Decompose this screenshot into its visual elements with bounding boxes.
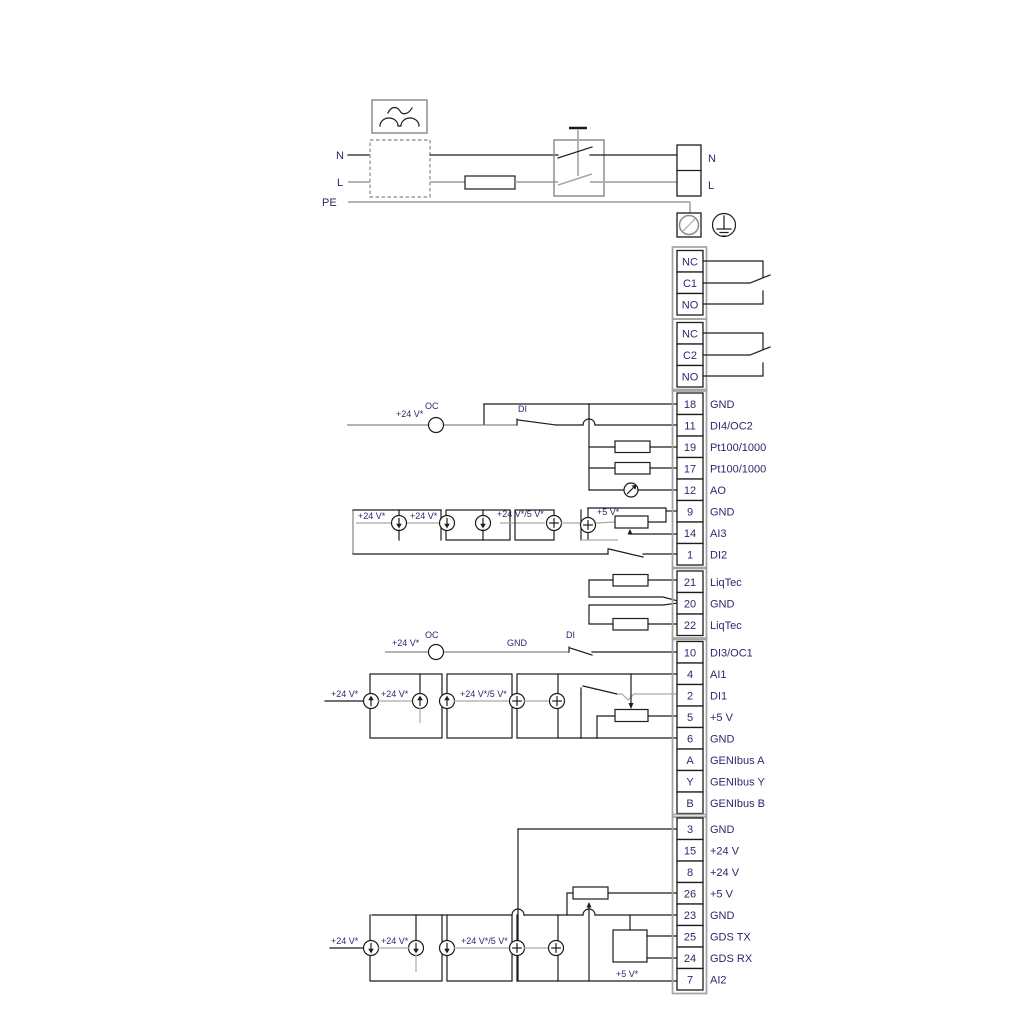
terminal-pin: A xyxy=(686,755,694,767)
terminal-group-main: 18GND 11DI4/OC2 19Pt100/1000 17Pt100/100… xyxy=(673,390,767,569)
terminal-label: GDS TX xyxy=(710,932,751,944)
terminal-label: GENIbus Y xyxy=(710,777,765,789)
terminal-pin: 4 xyxy=(687,669,693,681)
current-source-icon xyxy=(364,694,379,709)
terminal-label: GND xyxy=(710,824,735,836)
terminal-pin: 10 xyxy=(684,648,696,660)
terminal-pin: 5 xyxy=(687,712,693,724)
terminal-label: AI2 xyxy=(710,975,727,987)
terminal-label: GENIbus B xyxy=(710,798,765,810)
pe-label: PE xyxy=(322,197,337,209)
di4-oc2-circuit: +24 V* OC DI xyxy=(347,401,678,497)
gds-ai2-circuit: +24 V* +24 V* +24 V*/5 V* +5 V* xyxy=(330,829,678,981)
ann-24v: +24 V* xyxy=(410,511,438,521)
terminal-label: AI1 xyxy=(710,669,727,681)
current-source-icon xyxy=(440,694,455,709)
wiring-diagram: N L PE N L xyxy=(0,0,1024,1024)
potentiometer xyxy=(573,887,608,899)
ai3-di2-circuit: +24 V* +24 V* +24 V*/5 V* +5 V* xyxy=(353,507,678,557)
voltage-source-icon xyxy=(581,518,596,533)
relay-2: NC C2 NO xyxy=(673,319,771,391)
terminal-pin: 2 xyxy=(687,691,693,703)
resistor xyxy=(613,619,648,631)
voltage-source-icon xyxy=(547,516,562,531)
relay1-nc: NC xyxy=(682,257,698,269)
terminal-pin: 26 xyxy=(684,889,696,901)
sine-wave-icon xyxy=(388,107,412,113)
terminal-label: GND xyxy=(710,734,735,746)
control-unit-box xyxy=(370,140,430,197)
di-switch xyxy=(517,419,556,425)
terminal-label: +24 V xyxy=(710,867,740,879)
terminal-label: GDS RX xyxy=(710,953,753,965)
current-source-icon xyxy=(440,941,455,956)
voltage-source-icon xyxy=(510,694,525,709)
resistor xyxy=(613,575,648,587)
terminal-pin: Y xyxy=(686,777,694,789)
ai1-di1-circuit: +24 V* +24 V* +24 V*/5 V* xyxy=(325,674,678,738)
relay-1: NC C1 NO xyxy=(673,247,771,319)
ann-24v-5v: +24 V*/5 V* xyxy=(460,689,507,699)
di1-switch xyxy=(581,686,617,738)
resistor xyxy=(615,441,650,453)
di-switch xyxy=(569,647,592,655)
open-collector-icon xyxy=(429,645,444,660)
potentiometer xyxy=(615,516,648,535)
terminal-label: LiqTec xyxy=(710,620,742,632)
terminal-pin: 1 xyxy=(687,550,693,562)
terminal-label: +5 V xyxy=(710,712,734,724)
ann-24v: +24 V* xyxy=(392,638,420,648)
terminal-pin: 22 xyxy=(684,620,696,632)
ac-source-icon xyxy=(372,100,427,133)
terminal-pin: 24 xyxy=(684,953,696,965)
terminal-pin: 8 xyxy=(687,867,693,879)
terminal-label: +5 V xyxy=(710,889,734,901)
power-section: N L PE N L xyxy=(322,100,736,237)
gds-module xyxy=(613,930,647,962)
ann-di: DI xyxy=(518,404,527,414)
terminal-pin: 7 xyxy=(687,975,693,987)
ann-24v: +24 V* xyxy=(381,936,409,946)
terminal-pin: 17 xyxy=(684,464,696,476)
n-in-label: N xyxy=(336,150,344,162)
supply-terminal-block: N L xyxy=(677,145,716,196)
liqtec-circuit xyxy=(589,575,678,631)
terminal-pin: 12 xyxy=(684,485,696,497)
terminal-label: DI3/OC1 xyxy=(710,648,753,660)
terminal-label: +24 V xyxy=(710,846,740,858)
ao-meter-icon xyxy=(624,483,638,497)
rectified-wave-icon xyxy=(380,118,419,126)
potentiometer xyxy=(615,710,648,722)
wiper-arrow xyxy=(629,703,634,709)
terminal-pin: 21 xyxy=(684,577,696,589)
current-source-icon xyxy=(440,516,455,531)
current-source-icon xyxy=(392,516,407,531)
current-source-icon xyxy=(364,941,379,956)
ann-oc: OC xyxy=(425,401,439,411)
ann-24v: +24 V* xyxy=(358,511,386,521)
relay2-c2: C2 xyxy=(683,350,697,362)
fuse xyxy=(465,176,515,189)
ann-gnd: GND xyxy=(507,638,528,648)
terminal-pin: 19 xyxy=(684,442,696,454)
terminal-label: GND xyxy=(710,910,735,922)
terminal-label: DI1 xyxy=(710,691,727,703)
terminal-pin: 6 xyxy=(687,734,693,746)
terminal-label: AO xyxy=(710,485,726,497)
terminal-pin: 20 xyxy=(684,599,696,611)
current-source-icon xyxy=(409,941,424,956)
di3-oc1-circuit: +24 V* OC GND DI xyxy=(385,630,678,660)
terminal-label: GENIbus A xyxy=(710,755,765,767)
terminal-group-liqtec: 21LiqTec 20GND 22LiqTec xyxy=(673,568,743,640)
terminal-pin: 9 xyxy=(687,507,693,519)
ann-di: DI xyxy=(566,630,575,640)
ann-24v-5v: +24 V*/5 V* xyxy=(461,936,508,946)
n-out-label: N xyxy=(708,153,716,165)
ann-oc: OC xyxy=(425,630,439,640)
l-out-label: L xyxy=(708,180,714,192)
terminal-pin: 15 xyxy=(684,846,696,858)
relay2-nc: NC xyxy=(682,329,698,341)
ann-24v: +24 V* xyxy=(331,936,359,946)
resistor xyxy=(615,463,650,475)
terminal-pin: 14 xyxy=(684,528,696,540)
current-source-icon xyxy=(476,516,491,531)
ann-24v: +24 V* xyxy=(331,689,359,699)
terminal-pin: 23 xyxy=(684,910,696,922)
terminal-label: AI3 xyxy=(710,528,727,540)
relay1-contact xyxy=(703,261,770,304)
open-collector-icon xyxy=(429,418,444,433)
terminal-label: Pt100/1000 xyxy=(710,464,766,476)
di2-switch xyxy=(608,549,643,557)
terminal-pin: 18 xyxy=(684,399,696,411)
terminal-pin: B xyxy=(686,798,693,810)
terminal-label: Pt100/1000 xyxy=(710,442,766,454)
earth-icon xyxy=(713,214,736,237)
terminal-pin: 11 xyxy=(684,421,695,433)
current-source-icon xyxy=(413,694,428,709)
terminal-label: DI2 xyxy=(710,550,727,562)
l-in-label: L xyxy=(337,177,343,189)
ann-24v: +24 V* xyxy=(396,409,424,419)
relay1-no: NO xyxy=(682,300,699,312)
ann-24v: +24 V* xyxy=(381,689,409,699)
relay2-contact xyxy=(703,333,770,376)
relay2-no: NO xyxy=(682,372,699,384)
terminal-group-comm: 3GND 15+24 V 8+24 V 26+5 V 23GND 25GDS T… xyxy=(673,815,753,994)
terminal-label: DI4/OC2 xyxy=(710,421,753,433)
terminal-group-io: 10DI3/OC1 4AI1 2DI1 5+5 V 6GND AGENIbus … xyxy=(673,638,766,817)
terminal-label: LiqTec xyxy=(710,577,742,589)
terminal-pin: 3 xyxy=(687,824,693,836)
terminal-label: GND xyxy=(710,399,735,411)
ann-5v: +5 V* xyxy=(616,969,639,979)
terminal-label: GND xyxy=(710,599,735,611)
voltage-source-icon xyxy=(510,941,525,956)
voltage-source-icon xyxy=(549,941,564,956)
terminal-label: GND xyxy=(710,507,735,519)
voltage-source-icon xyxy=(550,694,565,709)
terminal-pin: 25 xyxy=(684,932,696,944)
shield-ground-terminal xyxy=(677,213,701,237)
relay1-c1: C1 xyxy=(683,278,697,290)
main-switch xyxy=(554,128,604,196)
